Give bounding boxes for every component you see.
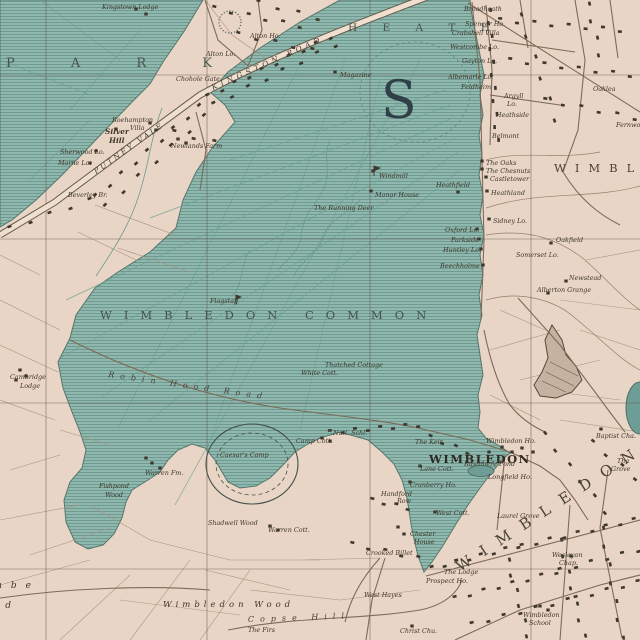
label-oakfield: Oakfield [556,236,583,244]
label-spencer-ho: Spencer Ho. [465,20,505,28]
park-area-label: P A R K [6,56,238,71]
label-newstead: Newstead [568,274,601,282]
label-the-lodge: The Lodge [444,568,478,576]
label-wesleyan-chap-l1: Wesleyan [552,551,582,559]
wimbledon-common-label: WIMBLEDON COMMON [100,308,438,322]
label-the-grove-l2: Grove [611,465,631,473]
label-silver-hill-l1: Silver [105,127,130,136]
label-fishpond-wood-l2: Wood [105,491,123,499]
label-prospect-ho: Prospect Ho. [425,577,468,585]
label-running-deer: The Running Deer [314,204,374,212]
label-huntley-lo: Huntley Lo. [442,246,481,254]
label-marne-lo: Marne Lo. [57,159,91,167]
label-oxford-lo: Oxford Lo. [445,226,479,234]
label-heathland: Heathland [490,189,525,197]
label-west-cott: West Cott. [436,509,470,517]
label-warren-cott: Warren Cott. [268,526,310,534]
label-oaklea: Oaklea [593,85,616,93]
label-chohole-gate: Chohole Gate [176,75,220,83]
label-rushmere-pond: Rushmere Pond [463,460,515,468]
label-handford-row-l2: Row [396,497,412,505]
label-somerset-lo: Somerset Lo. [516,251,559,259]
label-sidney-lo: Sidney Lo. [493,217,527,225]
label-the-chesnuts: The Chesnuts [486,167,531,175]
coombe-wood-label-partial: Wood [0,601,20,611]
label-castletower: Castletower [490,175,530,183]
label-wimbledon-school-l2: School [529,619,551,627]
label-warren-fm: Warren Fm. [145,469,183,477]
label-west-hayes: West Hayes [364,591,402,599]
label-parkside-ho: Parkside [450,236,479,244]
label-sherwood-lo: Sherwood Lo. [60,148,105,156]
label-broadheath: Broadheath [463,5,502,13]
label-chester-house-l1: Chester [410,530,436,538]
label-thatched-cottage: Thatched Cottage [325,361,383,369]
label-fernwood: Fernwood [615,121,640,129]
label-lane-cott: Lane Cott. [419,465,454,473]
label-heathside: Heathside [495,111,529,119]
wimbledon-wood-label: Wimbledon Wood [163,600,294,610]
antique-map-canvas[interactable]: P A R K H E A T H WIMBLEDON COMMON WIMBL… [0,0,640,640]
label-silver-hill-l2: Hill [108,136,125,145]
label-windmill: Windmill [379,172,408,180]
label-the-oaks: The Oaks [486,159,517,167]
label-manor-house: Manor House [374,191,419,199]
label-heathfield: Heathfield [435,181,470,189]
label-wimbledon-ho: Wimbledon Ho. [486,437,536,445]
label-beechholme: Beechholme [439,262,480,270]
label-crabshell-villa: Crabshell Villa [452,29,500,37]
coombe-label-partial: Coombe [0,581,40,591]
label-flagstaff: Flagstaff [209,297,240,305]
label-albemarle-lo: Albemarle Lo. [447,73,493,81]
label-wesleyan-chap-l2: Chap. [559,559,578,567]
label-wimbledon-school-l1: Wimbledon [523,611,560,619]
label-cranberry-ho: Cranberry Ho. [410,481,457,489]
label-roehampton-villa-l1: Roehampton [111,116,153,124]
label-alberton-grange: Alberton Grange [536,286,591,294]
label-magazine: Magazine [339,71,372,79]
label-fishpond-wood-l1: Fishpond [98,482,129,490]
label-alton-lo: Alton Lo. [205,50,235,58]
label-crooked-billet: Crooked Billet [366,549,413,557]
label-chester-house-l2: House [413,538,435,546]
label-newlands-farm: Newlands Farm [170,142,222,150]
label-caesars-camp: Caesar's Camp [220,451,269,459]
label-christ-chu: Christ Chu. [400,627,437,635]
label-the-keir: The Keir. [415,438,444,446]
label-argyll-lo-l2: Lo. [506,100,517,108]
label-cambridge-lodge-l1: Cambridge [10,373,46,381]
label-the-grove-l1: The [617,457,629,465]
wimbledon-park-edge-label: WIMBLEDON [554,161,640,175]
label-camp-cott: Camp Cott. [296,437,333,445]
label-cambridge-lodge-l2: Lodge [19,382,40,390]
label-belmont: Belmont [491,132,520,140]
label-gayton-lo: Gayton Lo. [462,57,497,65]
label-natl-schl: Natl. Schl. [332,429,367,437]
label-shadwell-wood: Shadwell Wood [208,519,258,527]
label-laurel-grove: Laurel Grove [496,512,540,520]
label-baptist-cha: Baptist Cha. [595,432,636,440]
label-kingstown-lodge: Kingstown Lodge [101,3,159,11]
big-letter-s: S [381,71,417,131]
label-beverley-br: Beverley Br. [67,191,107,199]
label-the-firs: The Firs [248,626,276,634]
label-westcombe-lo: Westcombe Lo. [450,43,499,51]
label-roehampton-villa-l2: Villa [130,124,145,132]
label-longfield-ho: Longfield Ho. [487,473,532,481]
label-argyll-lo-l1: Argyll [503,92,523,100]
label-alton-ho: Alton Ho. [249,32,281,40]
label-white-cott: White Cott. [301,369,338,377]
label-feldheim: Feldheim [460,83,491,91]
